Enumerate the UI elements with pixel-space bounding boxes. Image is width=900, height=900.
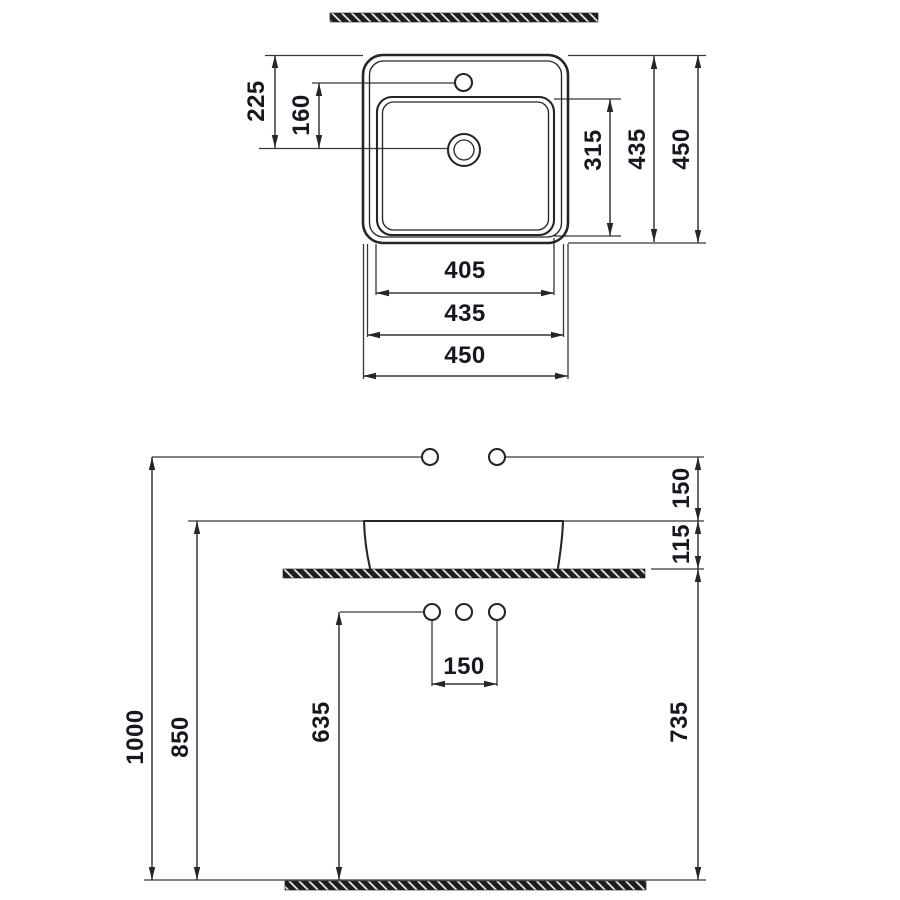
dim-label-225: 225 xyxy=(245,80,269,122)
dim-label-450-right: 450 xyxy=(670,128,694,170)
front-view xyxy=(144,449,706,890)
extension-lines-top-view xyxy=(259,56,706,380)
dim-405 xyxy=(376,290,554,296)
drain-outer-circle xyxy=(448,134,480,166)
dim-150-bottom xyxy=(432,681,497,687)
dim-label-150-right: 150 xyxy=(670,467,694,509)
dim-label-850: 850 xyxy=(169,716,193,758)
dim-115 xyxy=(695,521,701,569)
dim-label-1000: 1000 xyxy=(124,709,148,764)
basin-dimension-drawing xyxy=(0,0,900,900)
dim-450-bottom xyxy=(363,373,568,379)
dim-435-bottom xyxy=(367,332,564,338)
dim-225 xyxy=(272,55,278,148)
dim-label-435-bottom: 435 xyxy=(444,302,486,326)
fixing-hole-center xyxy=(456,604,472,620)
dim-label-435-right: 435 xyxy=(626,128,650,170)
dim-160 xyxy=(316,83,322,148)
fixing-hole-left xyxy=(424,604,440,620)
dim-label-150-bottom: 150 xyxy=(443,655,485,679)
dim-435-right xyxy=(651,56,657,242)
dim-1000 xyxy=(149,457,155,880)
dim-635 xyxy=(336,612,342,880)
dim-735 xyxy=(695,569,701,880)
supply-hole-right xyxy=(489,449,505,465)
dim-label-115: 115 xyxy=(670,524,694,564)
dim-label-735: 735 xyxy=(668,701,692,743)
dim-label-315: 315 xyxy=(582,129,606,171)
fixing-hole-right xyxy=(489,604,505,620)
dim-150-right xyxy=(695,457,701,521)
dim-label-405: 405 xyxy=(444,259,486,283)
dim-label-160: 160 xyxy=(290,94,314,136)
dim-315 xyxy=(607,99,613,236)
dim-450-right xyxy=(695,55,701,243)
floor-hatch xyxy=(285,881,646,890)
faucet-hole xyxy=(455,74,472,91)
dim-850 xyxy=(194,521,200,880)
wall-section-hatch xyxy=(330,13,598,22)
countertop-hatch xyxy=(283,569,645,578)
dim-label-450-bottom: 450 xyxy=(444,344,486,368)
technical-drawing-sheet: 225 160 315 435 450 405 435 450 1000 850… xyxy=(0,0,900,900)
supply-hole-left xyxy=(422,449,438,465)
basin-profile-front xyxy=(364,521,563,568)
dim-label-635: 635 xyxy=(310,701,334,743)
